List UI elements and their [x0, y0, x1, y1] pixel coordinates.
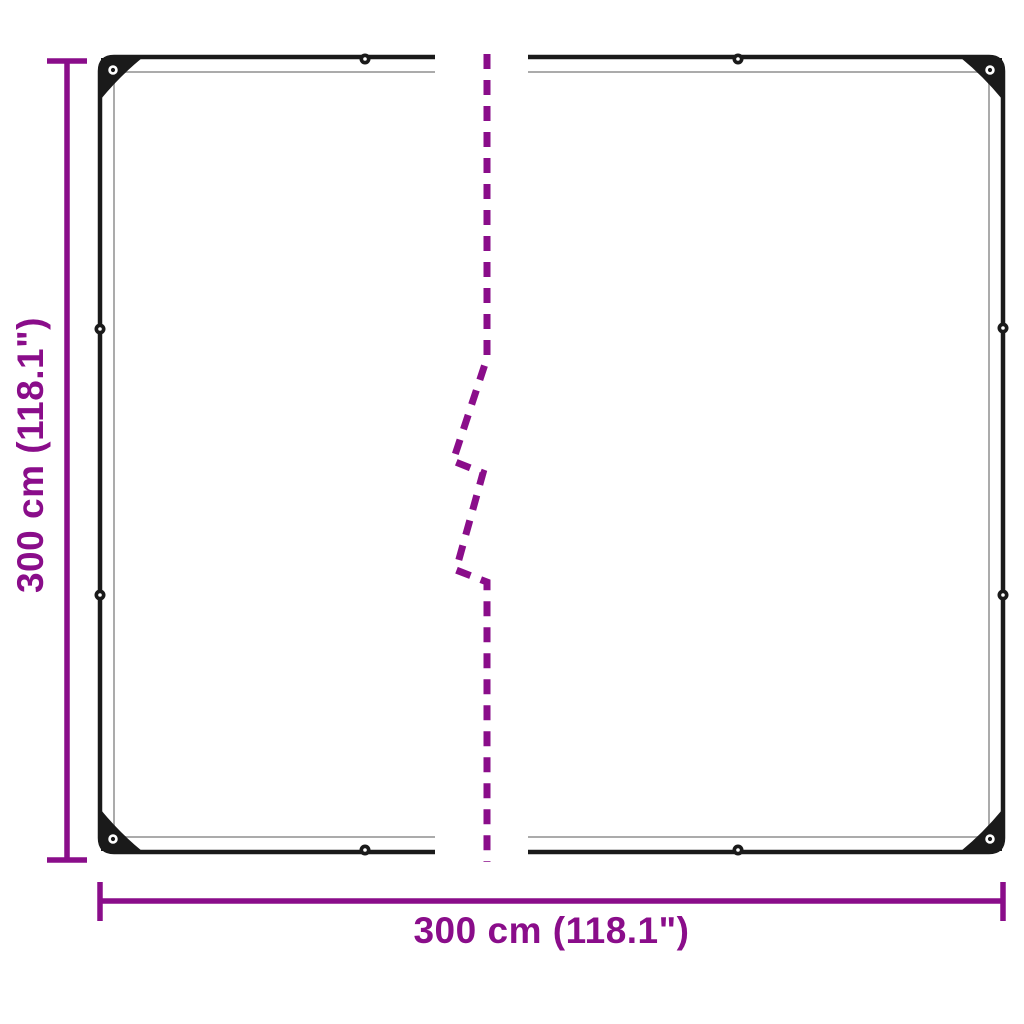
- grommet-right-upper: [998, 323, 1009, 334]
- grommet-hole: [736, 57, 740, 61]
- edge-grommets: [95, 54, 1009, 856]
- tarp-left-inner-seam: [114, 72, 435, 837]
- break-line-dashed: [453, 54, 487, 862]
- grommet-hole: [363, 57, 367, 61]
- grommet-hole: [736, 848, 740, 852]
- grommet-hole: [1001, 326, 1005, 330]
- corner-patch-icon: [101, 810, 142, 851]
- grommet-bottom-left-half: [360, 845, 371, 856]
- grommet-hole: [1001, 593, 1005, 597]
- tarp-left-panel: [100, 57, 435, 852]
- vertical-dimension-label: 300 cm (118.1"): [10, 45, 54, 865]
- grommet-hole: [363, 848, 367, 852]
- corner-eyelet-center: [111, 837, 115, 841]
- corner-patch-top-left: [101, 58, 142, 99]
- corner-eyelet-center: [111, 68, 115, 72]
- tarpaulin-drawing: [0, 0, 1024, 1024]
- product-dimension-diagram: 300 cm (118.1") 300 cm (118.1"): [0, 0, 1024, 1024]
- grommet-left-upper: [95, 324, 106, 335]
- corner-patch-bottom-right: [961, 810, 1002, 851]
- corner-patch-icon: [961, 58, 1002, 99]
- grommet-hole: [98, 327, 102, 331]
- grommet-left-lower: [95, 590, 106, 601]
- corner-patch-icon: [961, 810, 1002, 851]
- tarp-right-panel: [528, 57, 1003, 852]
- corner-patch-icon: [101, 58, 142, 99]
- grommet-bottom-right-half: [733, 845, 744, 856]
- corner-patch-bottom-left: [101, 810, 142, 851]
- grommet-right-lower: [998, 590, 1009, 601]
- corner-eyelet-center: [988, 837, 992, 841]
- horizontal-dimension-label: 300 cm (118.1"): [100, 910, 1003, 952]
- grommet-top-left-half: [360, 54, 371, 65]
- grommet-top-right-half: [733, 54, 744, 65]
- tarp-right-inner-seam: [528, 72, 989, 837]
- corner-patch-top-right: [961, 58, 1002, 99]
- corner-eyelet-center: [988, 68, 992, 72]
- grommet-hole: [98, 593, 102, 597]
